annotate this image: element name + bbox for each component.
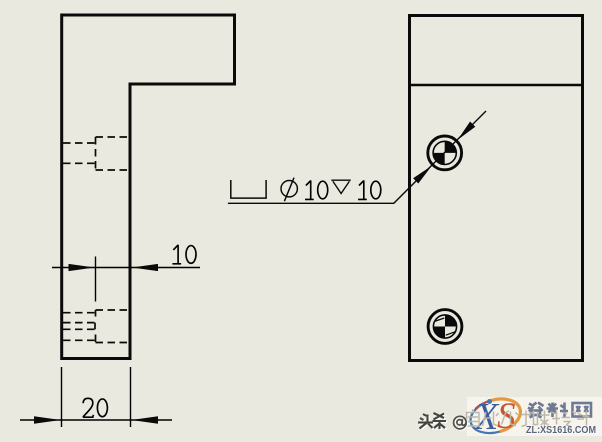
- svg-text:ZL:XS1616.COM: ZL:XS1616.COM: [526, 425, 596, 436]
- svg-text:S: S: [497, 396, 516, 437]
